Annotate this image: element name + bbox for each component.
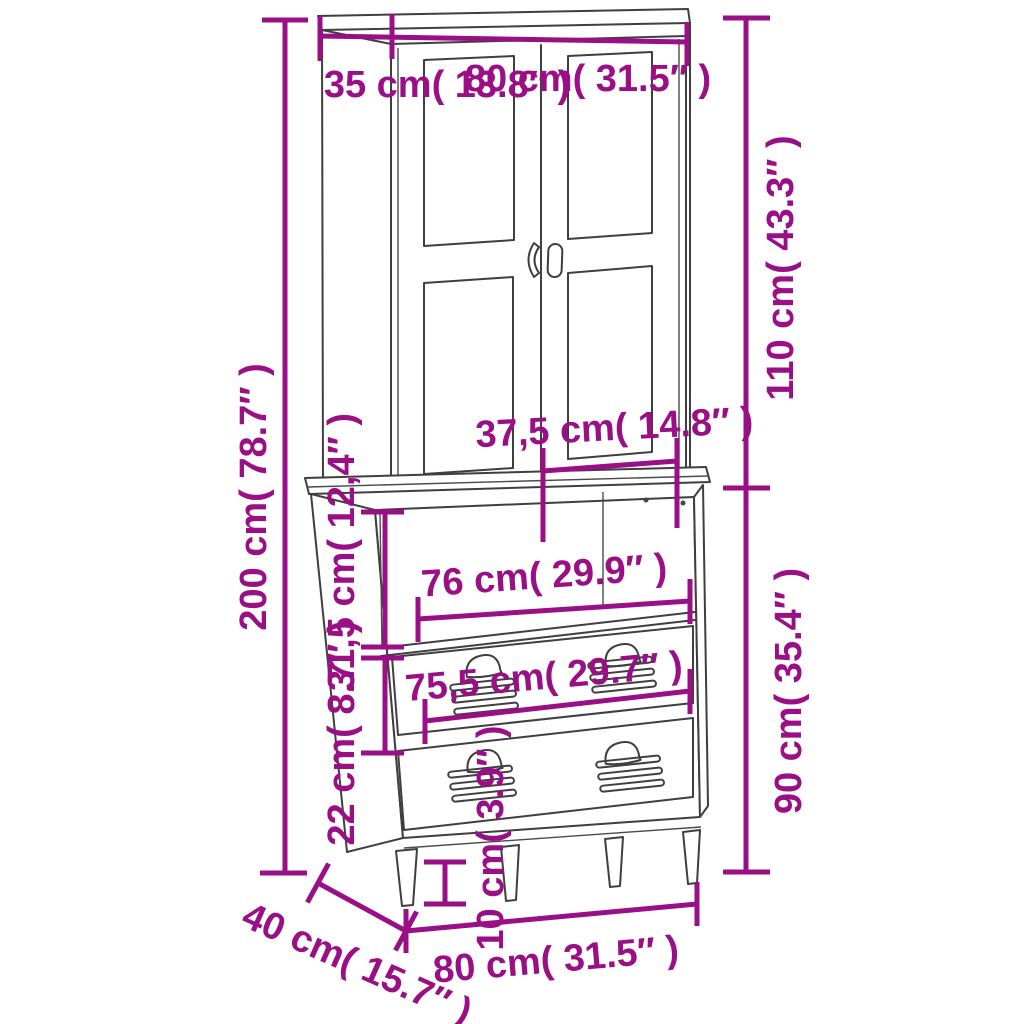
hutch-top-slab xyxy=(318,9,690,30)
cabinet-legs xyxy=(396,830,700,906)
leg-front-right xyxy=(683,830,700,884)
highboard-dimension-diagram: 35 cm( 13.8″ ) 80 cm( 31.5″ ) 200 cm( 78… xyxy=(0,0,1024,1024)
dim-drawer-height-label: 22 cm( 8.7″ ) xyxy=(321,620,363,845)
dimension-diagram-canvas: 35 cm( 13.8″ ) 80 cm( 31.5″ ) 200 cm( 78… xyxy=(0,0,1024,1024)
dim-leg-height-label: 10 cm( 3.9″ ) xyxy=(470,725,512,950)
dim-upper-height-label: 110 cm( 43.3″ ) xyxy=(760,135,802,400)
dim-total-height-label: 200 cm( 78.7″ ) xyxy=(233,363,275,630)
leg-mid-right xyxy=(605,837,623,887)
leg-front-left xyxy=(396,849,417,906)
dim-lower-height-label: 90 cm( 35.4″ ) xyxy=(768,568,810,814)
shelf-pin-hole xyxy=(644,498,649,503)
dim-top-width-label: 80 cm( 31.5″ ) xyxy=(465,58,711,100)
dim-base-width-label: 80 cm( 31.5″ ) xyxy=(431,928,680,991)
shelf-pin-hole xyxy=(681,501,686,506)
dim-leg-height xyxy=(424,862,466,904)
